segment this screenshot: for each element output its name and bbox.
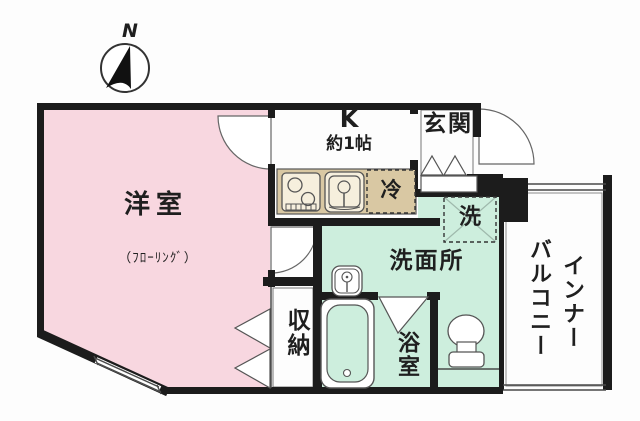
entrance-door-arc [479,109,534,164]
entrance-step-triangles [421,156,466,175]
washing-machine-label: 洗 [457,206,483,230]
stove-icon [282,173,320,211]
living-room-flooring-note: （ﾌﾛｰﾘﾝｸﾞ） [92,252,224,266]
inner-balcony-label-left: バルコニー [523,238,550,378]
inner-balcony-label-right: インナー [556,254,583,364]
kitchen-sink-icon [325,172,364,212]
refrigerator-label: 冷 [378,179,404,202]
compass-north-label: N [114,21,146,42]
kitchen-size-label: 約1帖 [314,135,384,154]
kitchen-label: K [320,106,378,132]
entrance-label: 玄関 [419,112,477,137]
entrance-step [421,176,477,192]
storage-label: 収納 [281,308,308,392]
washbasin-icon [332,266,362,296]
bathroom-label: 浴室 [391,331,418,389]
living-room-label: 洋室 [98,191,214,220]
washroom-door-arc [271,227,317,273]
floor-plan: N 洋室 （ﾌﾛｰﾘﾝｸﾞ） K 約1帖 玄関 冷 洗 洗面所 収納 浴室 イン… [0,0,640,421]
bathtub-icon [321,299,374,388]
toilet-icon [448,315,484,367]
compass-icon [101,44,149,92]
washroom-label: 洗面所 [380,249,474,274]
